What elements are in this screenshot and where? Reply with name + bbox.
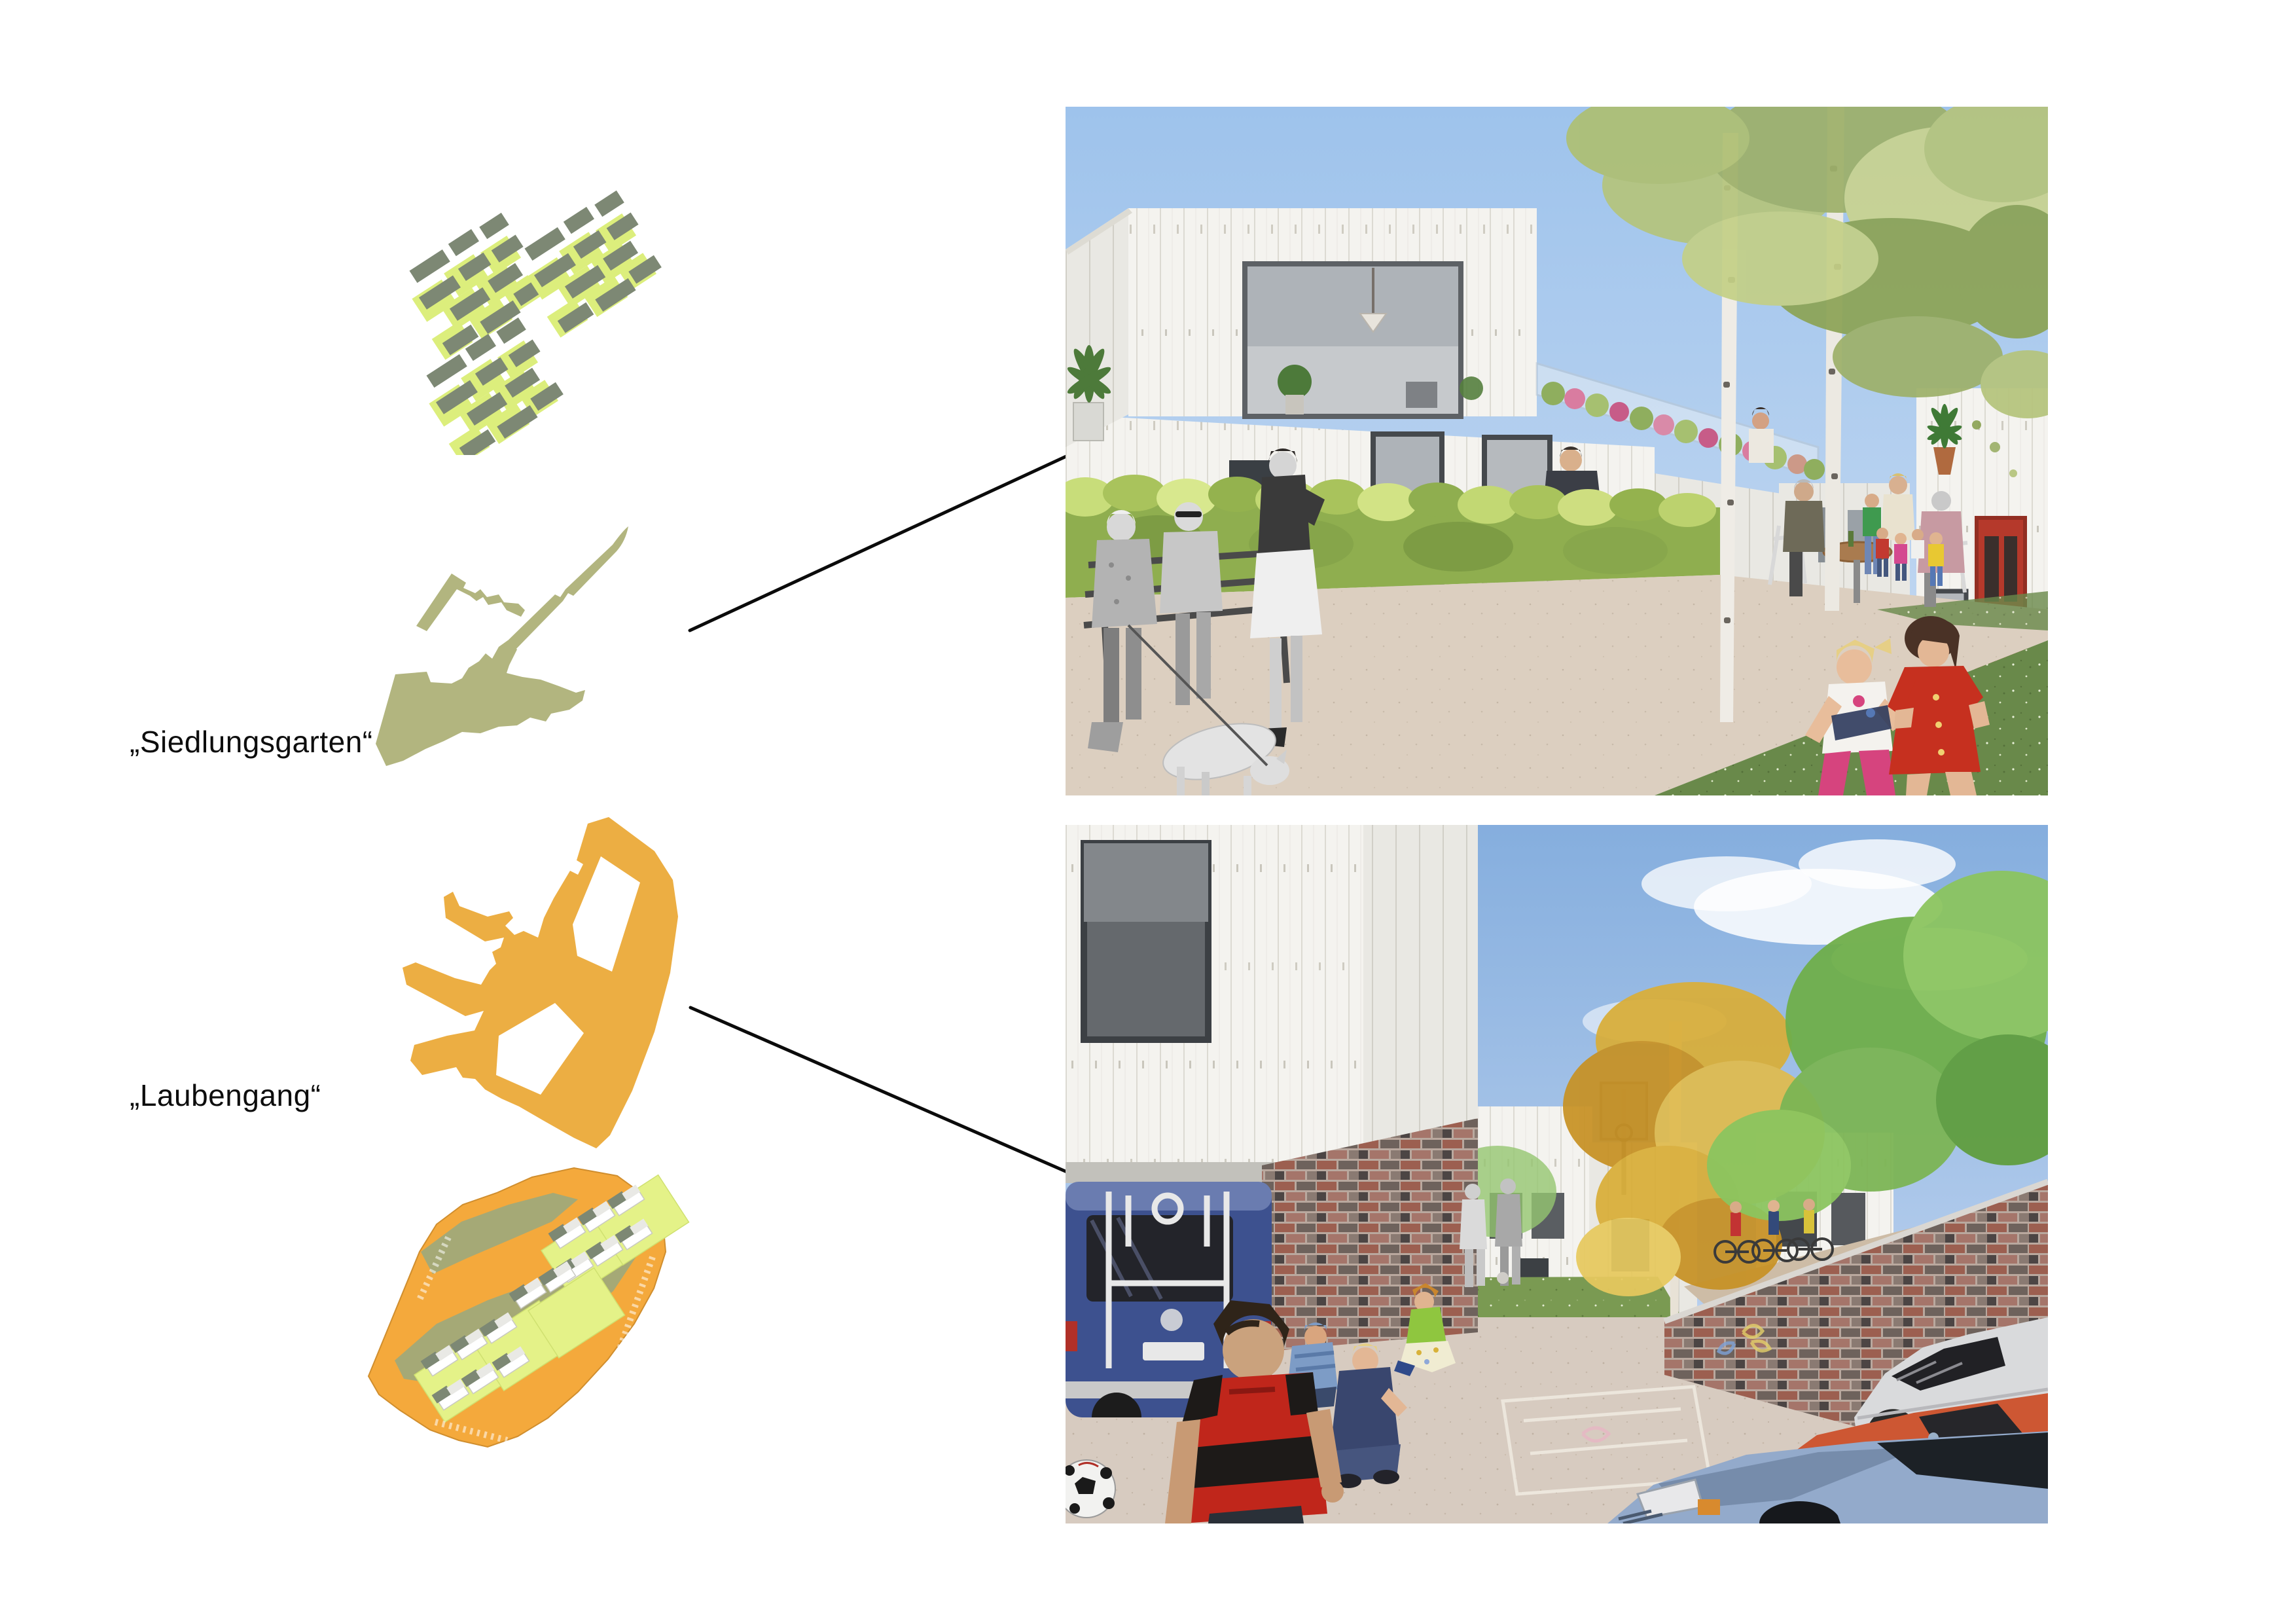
laubengang-diagram <box>363 817 707 1180</box>
label-siedlungsgarten: „Siedlungsgarten“ <box>130 724 373 759</box>
soccer-ball <box>1066 1460 1115 1518</box>
connector-line-bottom <box>691 1008 1067 1172</box>
siedlungsgarten-diagram <box>353 511 681 786</box>
label-laubengang: „Laubengang“ <box>130 1078 321 1113</box>
rendering-street-parking <box>1066 825 2048 1523</box>
rendering-garden-courtyard <box>1066 107 2048 795</box>
presentation-board: „Siedlungsgarten“ „Laubengang“ <box>0 0 2296 1623</box>
building-cluster-diagram <box>376 160 671 455</box>
connector-line-top <box>690 456 1066 630</box>
siteplan-diagram <box>357 1159 694 1463</box>
